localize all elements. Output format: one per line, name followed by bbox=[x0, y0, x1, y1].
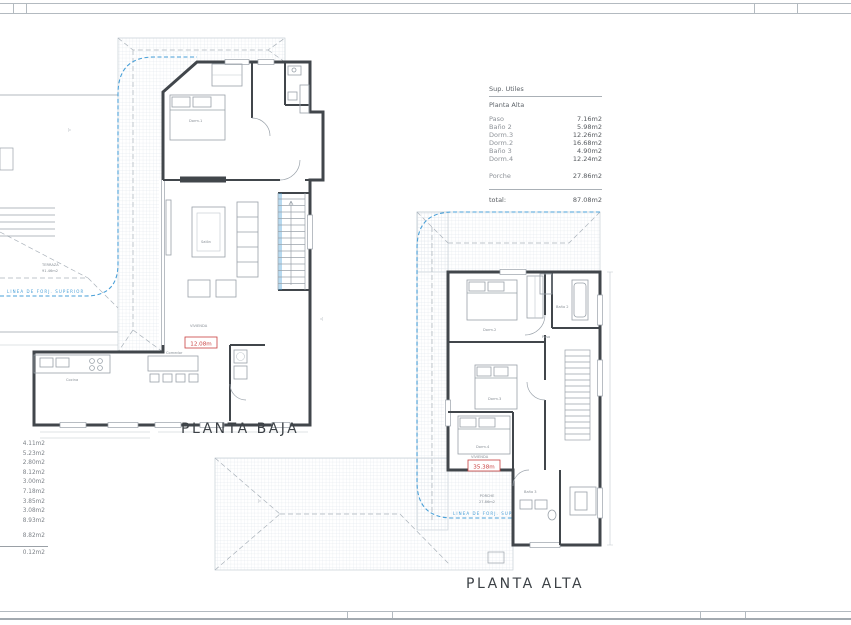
dimension-line bbox=[607, 272, 613, 545]
frame-line-bottom-1 bbox=[0, 611, 851, 612]
superficie-value: 35.38m bbox=[473, 465, 494, 471]
frame-tick bbox=[700, 611, 701, 618]
room-label-cocina: Cocina bbox=[66, 378, 78, 382]
planta-alta-title: PLANTA ALTA bbox=[466, 576, 584, 592]
left-list-rows: 4.11m2 5.23m2 2.80m2 8.12m2 3.00m2 7.18m… bbox=[0, 440, 45, 526]
bed-dorm4: Dorm.4 bbox=[458, 416, 510, 454]
table-rows: Paso 7.16m2 Baño 2 5.98m2 Dorm.3 12.26m2… bbox=[489, 115, 602, 163]
bed-dorm1: Dorm.1 bbox=[170, 95, 225, 140]
left-list-value: 2.80m2 bbox=[0, 459, 45, 469]
table-rule bbox=[489, 96, 602, 97]
left-list-value: 4.11m2 bbox=[0, 440, 45, 450]
table-row: Paso 7.16m2 bbox=[489, 115, 602, 123]
sup-utiles-table: Sup. Utiles Planta Alta Paso 7.16m2 Baño… bbox=[489, 85, 602, 204]
room-label-bano2: Baño 2 bbox=[556, 305, 569, 309]
left-list-value: 8.93m2 bbox=[0, 517, 45, 527]
level-marker: ▷ bbox=[68, 127, 72, 132]
table-row-total: total: 87.08m2 bbox=[489, 196, 602, 204]
bed-dorm3: Dorm.3 bbox=[475, 365, 517, 409]
drawing-sheet: TERRAZA 91.46m2 ▷ ◁ ◁ LINEA DE FORJ. SUP… bbox=[0, 0, 851, 625]
slab-line-label: LINEA DE FORJ. SUPERIOR bbox=[7, 289, 84, 294]
frame-tick bbox=[392, 611, 393, 618]
table-rule bbox=[489, 189, 602, 193]
frame-tick bbox=[754, 3, 755, 13]
table-row: Baño 3 4.90m2 bbox=[489, 147, 602, 155]
room-label-paso: Paso bbox=[542, 335, 550, 339]
table-row: Dorm.4 12.24m2 bbox=[489, 155, 602, 163]
table-row: Dorm.2 16.68m2 bbox=[489, 139, 602, 147]
room-label-dorm1: Dorm.1 bbox=[189, 119, 202, 123]
porche-area: 27.86m2 bbox=[479, 500, 495, 504]
left-list-value: 3.08m2 bbox=[0, 507, 45, 517]
left-list-value: 5.23m2 bbox=[0, 450, 45, 460]
frame-line-bottom-2 bbox=[0, 618, 851, 620]
frame-tick bbox=[797, 3, 798, 13]
room-label-dorm3: Dorm.3 bbox=[488, 397, 501, 401]
table-row-porche: Porche 27.86m2 bbox=[489, 172, 602, 180]
room-label-bano3: Baño 3 bbox=[524, 490, 537, 494]
terraza-label: TERRAZA bbox=[41, 263, 59, 267]
left-edge-area-list: 4.11m2 5.23m2 2.80m2 8.12m2 3.00m2 7.18m… bbox=[0, 440, 45, 559]
left-list-value: 3.85m2 bbox=[0, 498, 45, 508]
porche-label: PORCHE bbox=[480, 494, 496, 498]
room-label-comedor: Comedor bbox=[166, 351, 183, 355]
left-list-value: 7.18m2 bbox=[0, 488, 45, 498]
planta-baja-title: PLANTA BAJA bbox=[181, 421, 299, 437]
left-list-rule bbox=[0, 546, 48, 547]
left-list-value: 8.12m2 bbox=[0, 469, 45, 479]
planta-alta-plan: ▷ ◁ LINEA DE FORJ. SUPERIOR bbox=[200, 200, 660, 600]
table-section: Planta Alta bbox=[489, 101, 602, 109]
level-marker: ◁ bbox=[319, 316, 323, 321]
left-list-total: 0.12m2 bbox=[0, 549, 45, 559]
frame-tick bbox=[347, 611, 348, 618]
fireplace bbox=[180, 177, 226, 183]
left-list-subtotal: 8.82m2 bbox=[0, 532, 45, 542]
frame-tick bbox=[745, 611, 746, 618]
room-label-dorm2: Dorm.2 bbox=[483, 328, 496, 332]
vivienda-label: VIVIENDA bbox=[471, 455, 489, 459]
left-list-value: 3.00m2 bbox=[0, 478, 45, 488]
table-title: Sup. Utiles bbox=[489, 85, 602, 93]
terraza-area: 91.46m2 bbox=[42, 269, 58, 273]
table-row: Dorm.3 12.26m2 bbox=[489, 131, 602, 139]
left-edge-structure bbox=[0, 95, 118, 345]
table-row: Baño 2 5.98m2 bbox=[489, 123, 602, 131]
room-label-dorm4: Dorm.4 bbox=[476, 445, 490, 449]
